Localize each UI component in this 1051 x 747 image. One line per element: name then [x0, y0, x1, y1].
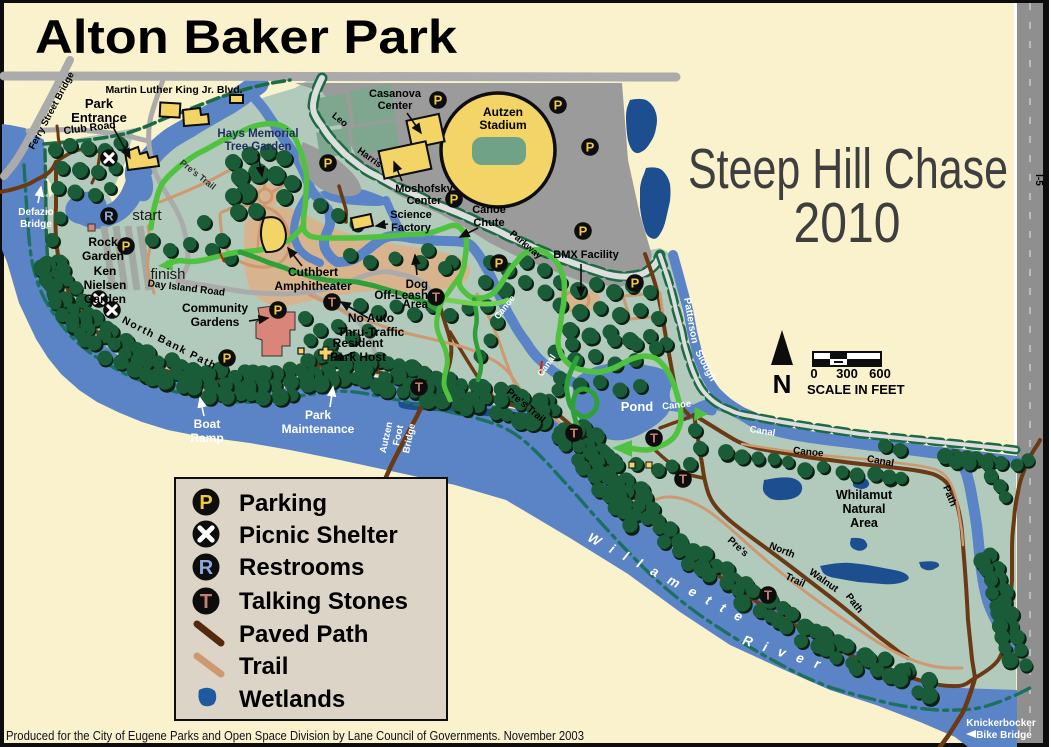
svg-text:Autzen: Autzen	[483, 105, 523, 119]
svg-text:Paved Path: Paved Path	[239, 621, 368, 648]
svg-text:600: 600	[869, 366, 891, 381]
svg-text:T: T	[764, 588, 772, 603]
svg-text:Moshofsky: Moshofsky	[395, 183, 453, 195]
svg-text:Alton Baker Park: Alton Baker Park	[35, 10, 458, 63]
svg-text:Chute: Chute	[473, 217, 504, 229]
svg-text:Park Host: Park Host	[330, 350, 386, 364]
svg-text:Park: Park	[85, 96, 114, 111]
svg-text:I-5: I-5	[1033, 174, 1044, 186]
svg-text:Restrooms: Restrooms	[239, 554, 364, 581]
svg-text:start: start	[132, 207, 162, 224]
svg-text:P: P	[434, 93, 443, 108]
svg-text:P: P	[579, 224, 588, 239]
svg-text:Resident: Resident	[333, 336, 384, 350]
svg-text:Picnic Shelter: Picnic Shelter	[239, 522, 398, 549]
svg-text:0: 0	[810, 366, 817, 381]
svg-text:Talking Stones: Talking Stones	[239, 588, 408, 615]
svg-text:Knickerbocker: Knickerbocker	[966, 718, 1036, 729]
svg-text:P: P	[495, 256, 504, 271]
svg-text:R: R	[104, 209, 114, 224]
svg-text:Stadium: Stadium	[479, 118, 526, 132]
svg-text:P: P	[199, 492, 212, 514]
svg-text:T: T	[200, 591, 212, 613]
svg-text:P: P	[324, 156, 333, 171]
svg-text:T: T	[679, 472, 687, 487]
svg-text:Wetlands: Wetlands	[239, 686, 345, 713]
svg-text:SCALE IN FEET: SCALE IN FEET	[807, 382, 905, 397]
svg-text:Defazio: Defazio	[18, 207, 54, 218]
svg-text:T: T	[328, 295, 336, 310]
svg-text:BMX Facility: BMX Facility	[553, 249, 619, 261]
svg-text:Martin Luther King Jr. Blvd.: Martin Luther King Jr. Blvd.	[105, 84, 242, 96]
svg-text:Ken: Ken	[94, 264, 117, 278]
svg-text:Tree Garden: Tree Garden	[224, 141, 291, 153]
svg-text:Garden: Garden	[84, 292, 126, 306]
svg-text:Whilamut: Whilamut	[836, 488, 893, 502]
svg-text:Canoe: Canoe	[472, 204, 506, 216]
svg-text:Cuthbert: Cuthbert	[288, 265, 338, 279]
svg-text:P: P	[631, 276, 640, 291]
svg-text:Rock: Rock	[88, 235, 118, 249]
svg-text:P: P	[274, 303, 283, 318]
svg-text:Nielsen: Nielsen	[84, 278, 127, 292]
svg-text:T: T	[415, 380, 423, 395]
svg-text:Maintenance: Maintenance	[282, 422, 355, 436]
svg-text:P: P	[586, 140, 595, 155]
svg-text:Produced for the City of Eugen: Produced for the City of Eugene Parks an…	[6, 729, 584, 743]
svg-text:T: T	[432, 290, 440, 305]
svg-text:Amphitheater: Amphitheater	[274, 279, 352, 293]
svg-text:Parking: Parking	[239, 490, 327, 517]
svg-text:Area: Area	[850, 516, 879, 530]
svg-text:Casanova: Casanova	[369, 88, 422, 100]
svg-text:2010: 2010	[794, 191, 901, 255]
svg-text:Boat: Boat	[194, 417, 221, 431]
svg-text:P: P	[554, 98, 563, 113]
svg-text:300: 300	[836, 366, 858, 381]
svg-text:Trail: Trail	[239, 653, 288, 680]
svg-text:Hays Memorial: Hays Memorial	[217, 128, 298, 140]
svg-text:Ramp: Ramp	[190, 431, 223, 445]
svg-text:Natural: Natural	[842, 502, 885, 516]
svg-text:Science: Science	[390, 209, 432, 221]
svg-text:Community: Community	[182, 301, 248, 315]
svg-text:T: T	[650, 431, 658, 446]
svg-text:N: N	[773, 369, 792, 399]
svg-text:Bike Bridge: Bike Bridge	[976, 730, 1032, 741]
svg-text:P: P	[223, 351, 232, 366]
svg-text:Center: Center	[407, 195, 443, 207]
svg-text:Center: Center	[378, 100, 414, 112]
svg-text:Factory: Factory	[391, 222, 432, 234]
svg-text:No Auto: No Auto	[348, 311, 394, 325]
svg-text:R: R	[199, 557, 214, 579]
svg-text:Pond: Pond	[621, 399, 654, 414]
svg-text:Gardens: Gardens	[191, 315, 240, 329]
svg-text:Bridge: Bridge	[20, 219, 52, 230]
svg-text:Park: Park	[305, 408, 331, 422]
svg-text:Garden: Garden	[82, 249, 124, 263]
svg-text:Area: Area	[402, 299, 428, 311]
svg-text:T: T	[570, 426, 578, 441]
